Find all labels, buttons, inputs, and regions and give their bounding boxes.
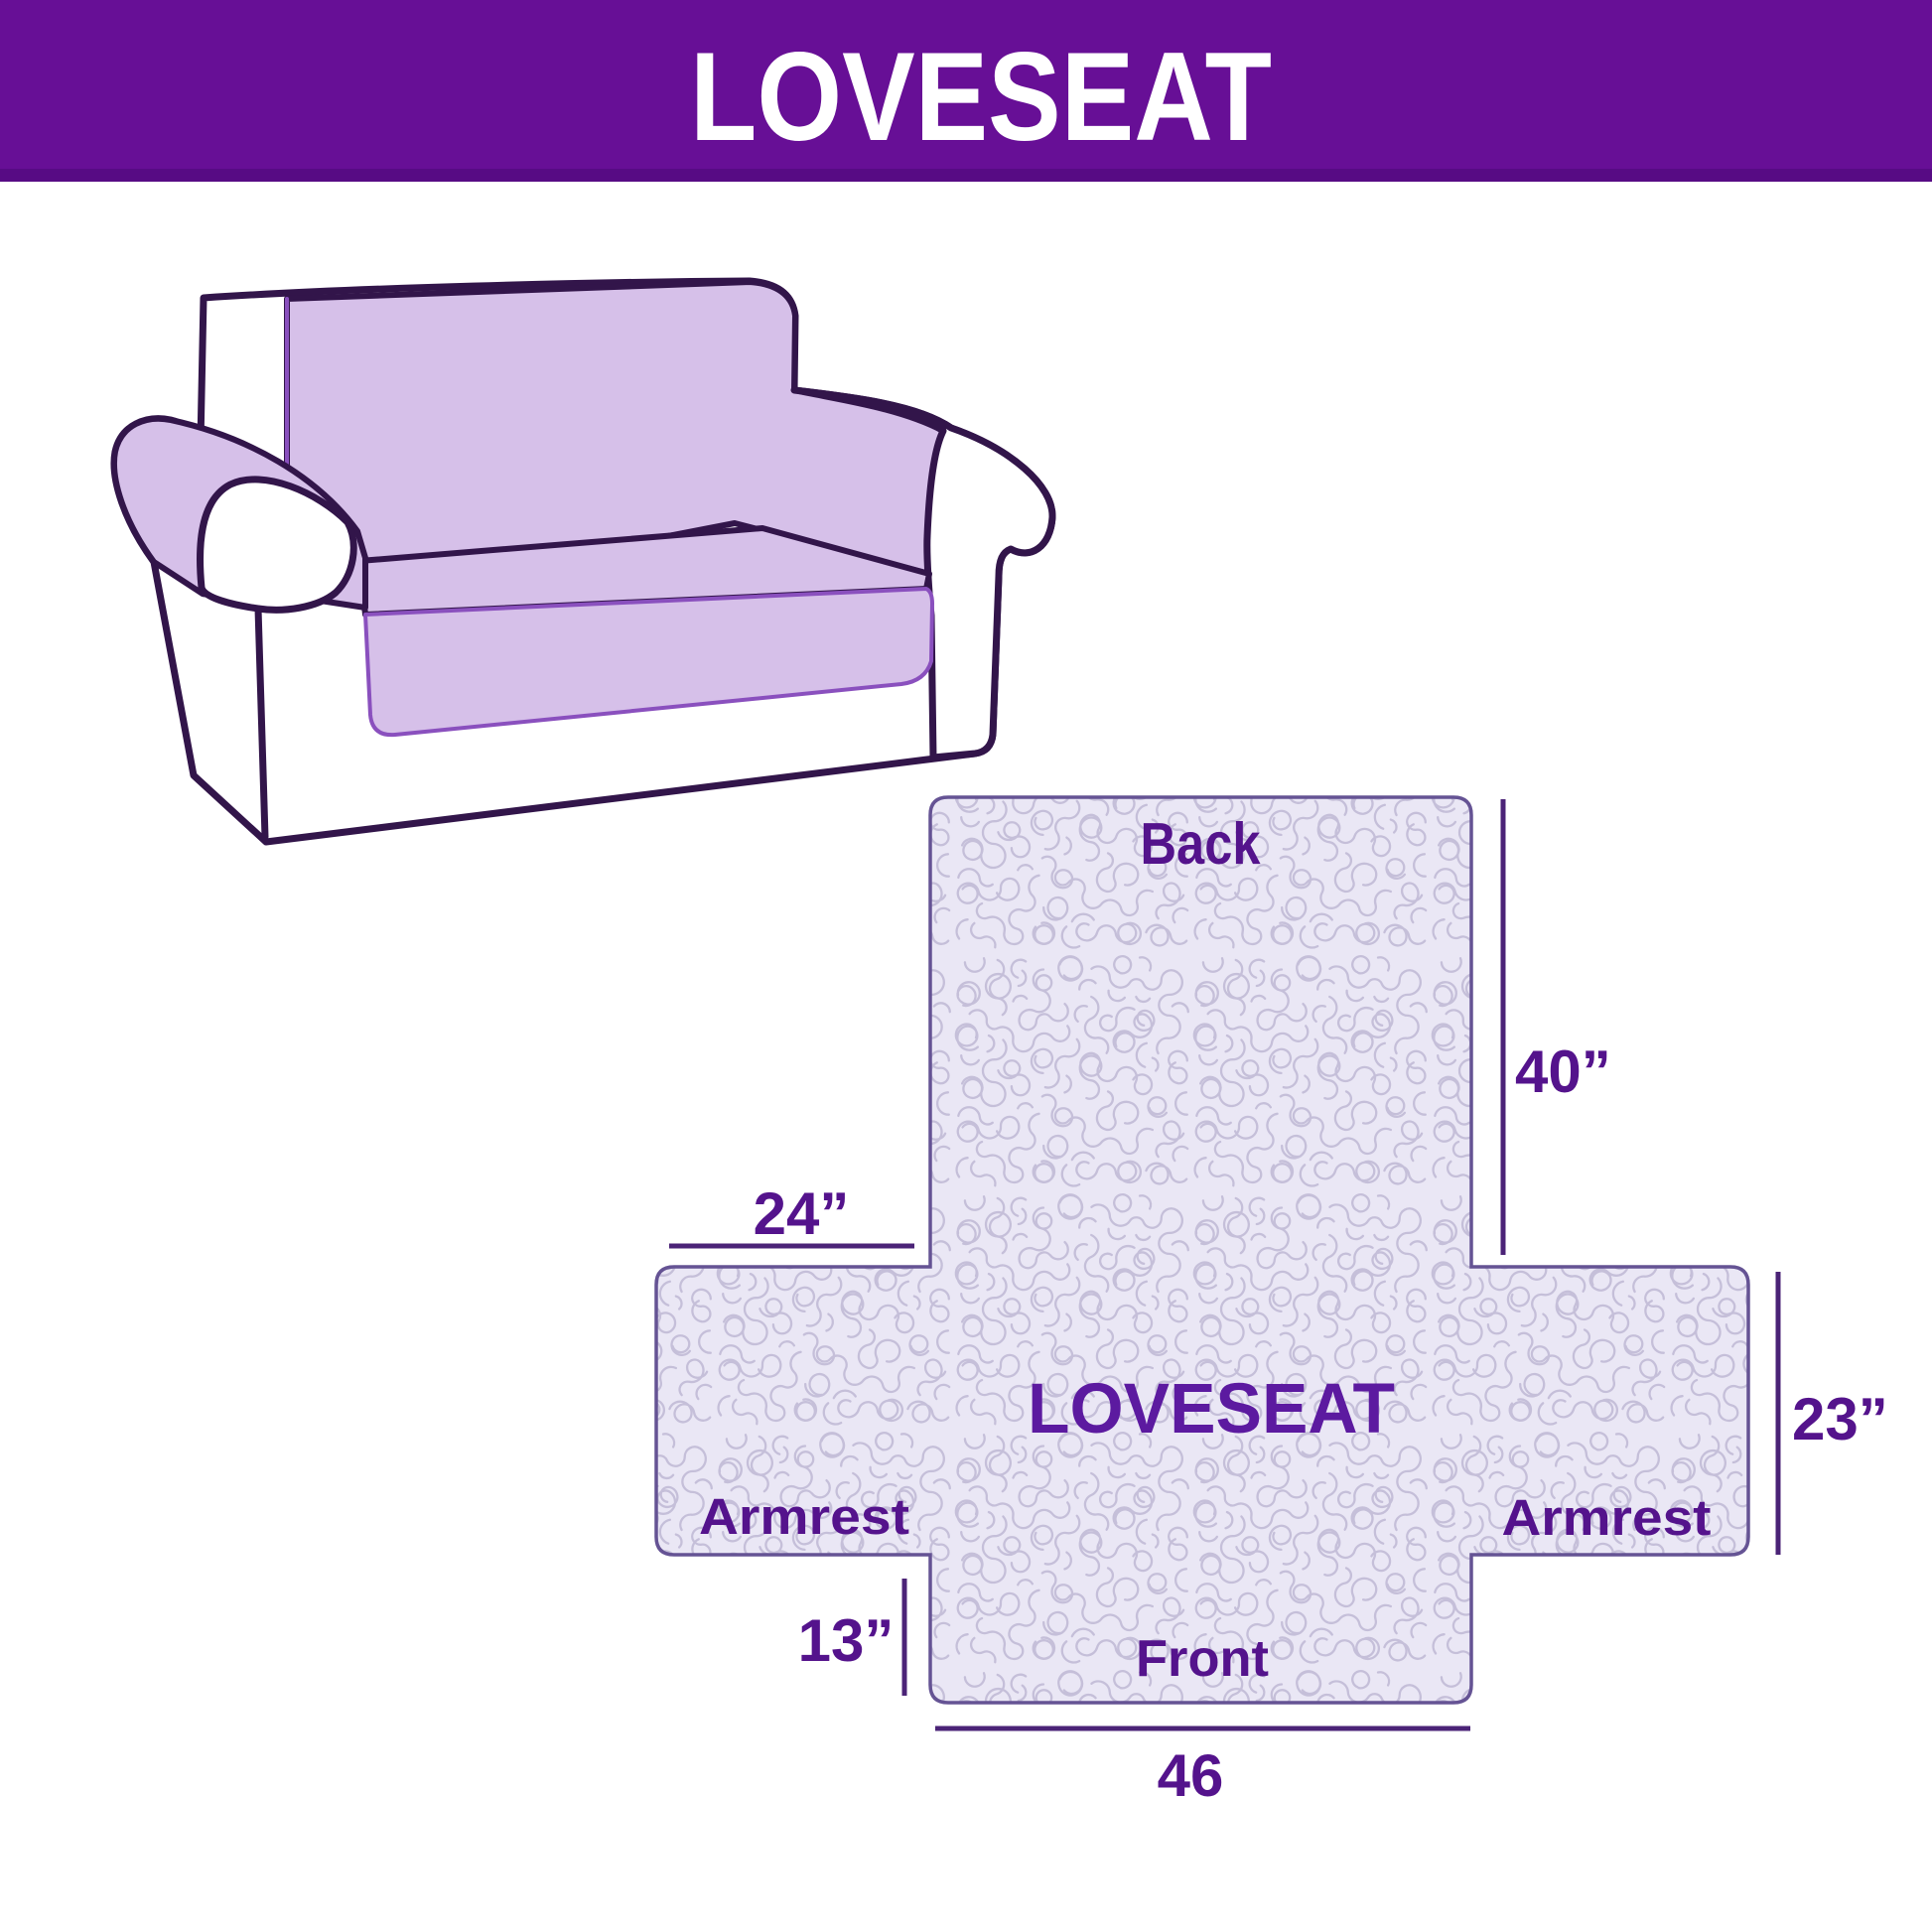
svg-text:Armrest: Armrest [1502, 1489, 1712, 1546]
svg-text:Back: Back [1141, 811, 1261, 877]
svg-text:24”: 24” [754, 1180, 850, 1247]
svg-text:Armrest: Armrest [699, 1488, 909, 1545]
svg-text:13”: 13” [798, 1607, 895, 1674]
svg-text:LOVESEAT: LOVESEAT [1028, 1370, 1395, 1449]
svg-text:23”: 23” [1792, 1386, 1888, 1452]
svg-text:Front: Front [1136, 1630, 1269, 1688]
svg-text:40”: 40” [1515, 1038, 1611, 1105]
svg-text:LOVESEAT: LOVESEAT [690, 26, 1272, 167]
svg-text:46: 46 [1158, 1742, 1224, 1809]
